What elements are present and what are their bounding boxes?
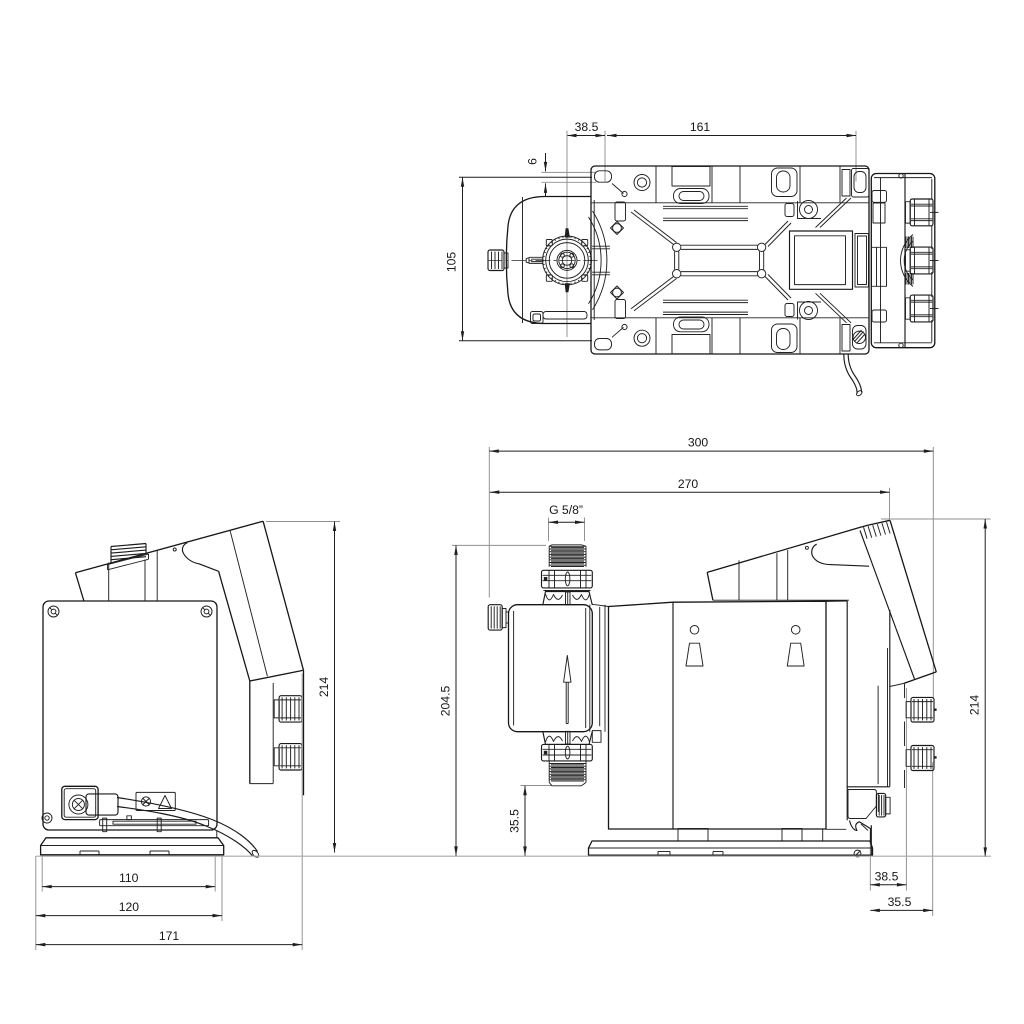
svg-text:161: 161 — [690, 120, 711, 134]
svg-text:120: 120 — [119, 900, 140, 914]
svg-text:35.5: 35.5 — [888, 895, 912, 909]
svg-text:38.5: 38.5 — [875, 869, 899, 883]
svg-text:204.5: 204.5 — [439, 686, 453, 717]
svg-text:105: 105 — [445, 252, 459, 273]
svg-text:110: 110 — [119, 871, 139, 885]
svg-text:G 5/8”: G 5/8” — [549, 503, 583, 517]
svg-text:214: 214 — [317, 677, 331, 698]
svg-text:300: 300 — [688, 436, 709, 450]
svg-text:35.5: 35.5 — [508, 809, 522, 833]
svg-text:6: 6 — [526, 158, 540, 165]
svg-text:270: 270 — [678, 477, 699, 491]
svg-text:38.5: 38.5 — [575, 120, 599, 134]
svg-text:171: 171 — [159, 929, 180, 943]
svg-text:214: 214 — [968, 695, 982, 716]
